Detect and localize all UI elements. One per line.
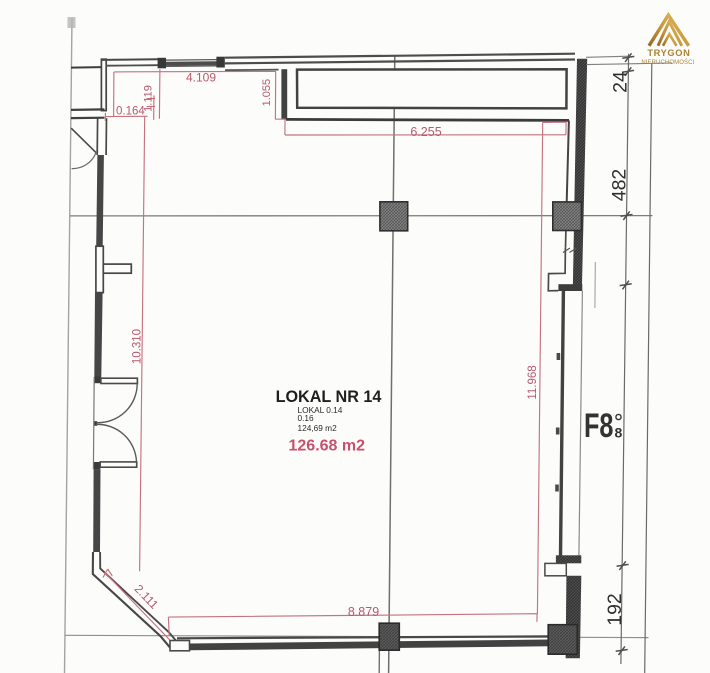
svg-text:11.968: 11.968: [527, 365, 539, 399]
svg-text:TRYGON: TRYGON: [647, 48, 690, 58]
svg-text:482: 482: [609, 169, 631, 202]
svg-text:NIERUCHOMOŚCI: NIERUCHOMOŚCI: [641, 58, 694, 66]
svg-text:8.879: 8.879: [348, 605, 379, 619]
svg-text:4.109: 4.109: [186, 71, 216, 85]
svg-text:192: 192: [604, 593, 626, 626]
svg-text:24: 24: [610, 71, 632, 93]
svg-text:F8: F8: [584, 407, 614, 445]
svg-text:126.68 m2: 126.68 m2: [289, 438, 366, 455]
svg-text:1.055: 1.055: [261, 79, 273, 107]
svg-text:LOKAL NR 14: LOKAL NR 14: [276, 388, 382, 406]
svg-text:124,69 m2: 124,69 m2: [298, 423, 338, 433]
svg-text:2.111: 2.111: [132, 582, 162, 612]
svg-text:0.164: 0.164: [116, 105, 145, 117]
svg-text:0.16: 0.16: [298, 413, 315, 423]
svg-text:8: 8: [615, 425, 623, 441]
svg-text:10.310: 10.310: [132, 329, 144, 364]
svg-text:1.119: 1.119: [143, 85, 155, 112]
svg-text:6.255: 6.255: [410, 125, 441, 139]
